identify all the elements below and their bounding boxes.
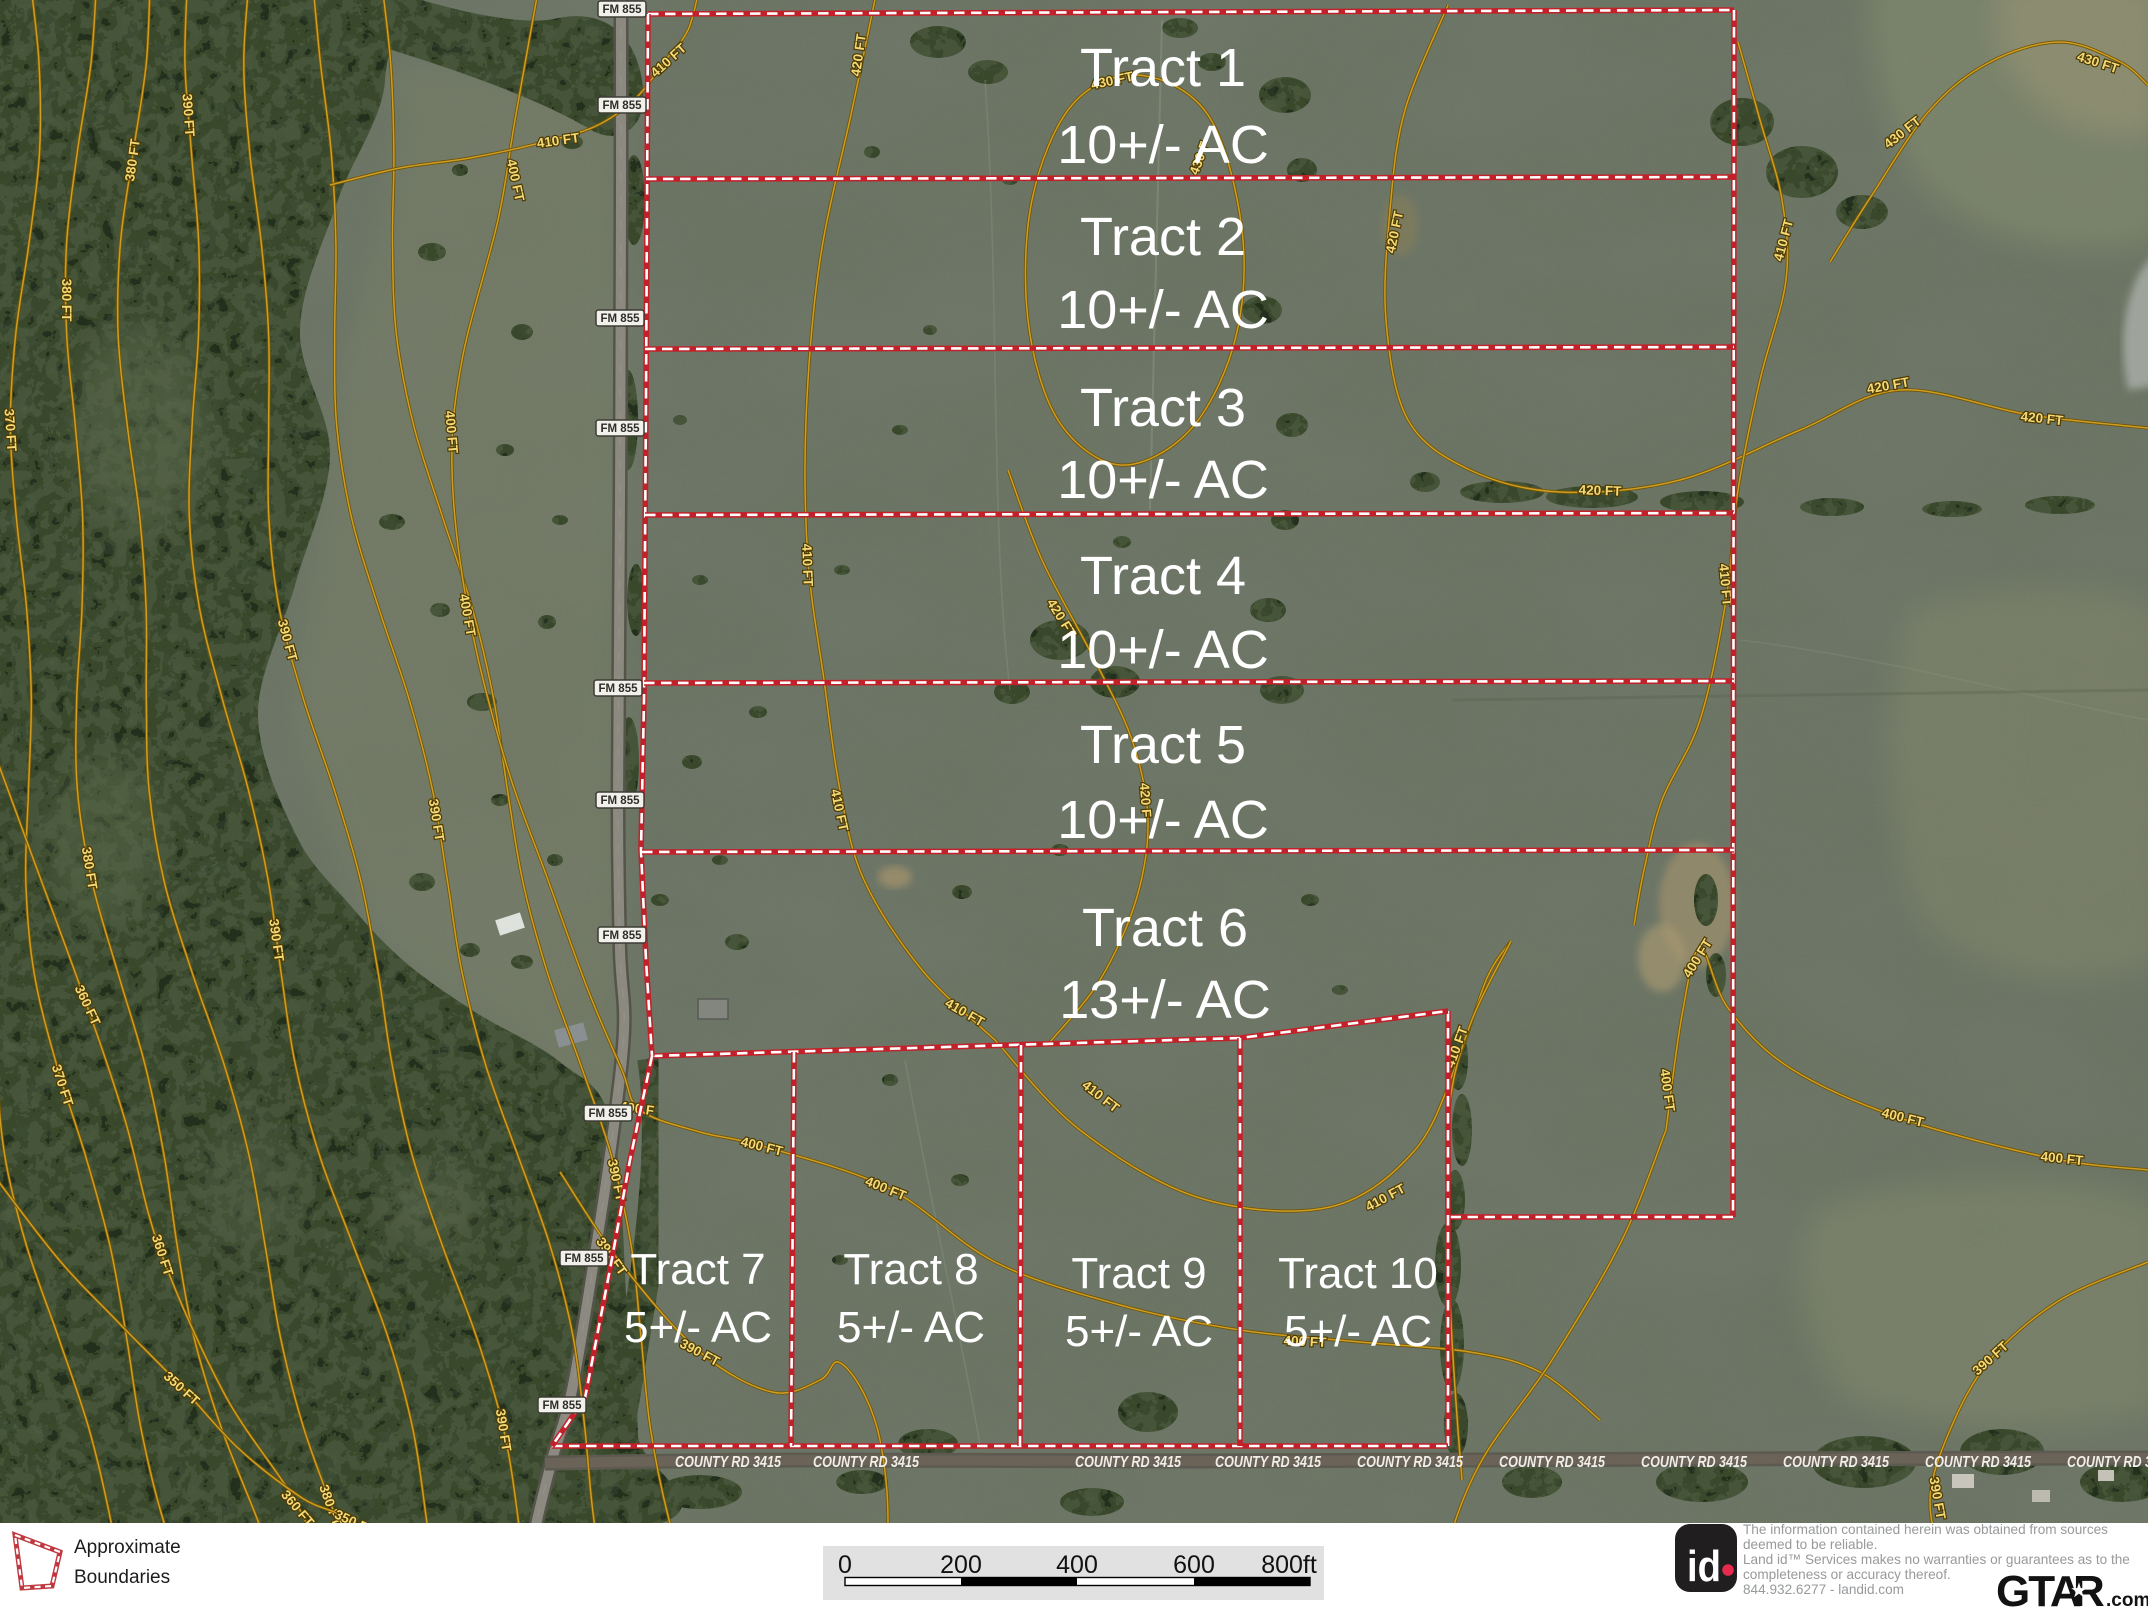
- svg-text:5+/- AC: 5+/- AC: [1065, 1307, 1213, 1356]
- svg-text:FM 855: FM 855: [601, 313, 641, 325]
- svg-text:Tract 3: Tract 3: [1080, 378, 1246, 438]
- svg-text:Boundaries: Boundaries: [74, 1567, 170, 1588]
- svg-text:.com: .com: [2106, 1590, 2148, 1609]
- svg-text:844.932.6277 - landid.com: 844.932.6277 - landid.com: [1743, 1582, 1904, 1597]
- svg-text:380 FT: 380 FT: [59, 279, 74, 323]
- svg-text:COUNTY RD 3415: COUNTY RD 3415: [675, 1454, 781, 1471]
- svg-text:FM 855: FM 855: [603, 100, 643, 112]
- svg-text:FM 855: FM 855: [565, 1253, 605, 1265]
- svg-text:COUNTY RD 3415: COUNTY RD 3415: [1075, 1454, 1181, 1471]
- svg-text:10+/- AC: 10+/- AC: [1057, 280, 1269, 340]
- svg-text:COUNTY RD 3415: COUNTY RD 3415: [1641, 1454, 1747, 1471]
- svg-text:200: 200: [940, 1551, 982, 1579]
- svg-text:600: 600: [1173, 1551, 1215, 1579]
- svg-text:13+/- AC: 13+/- AC: [1059, 970, 1271, 1030]
- svg-text:Tract 8: Tract 8: [843, 1245, 978, 1294]
- svg-text:Tract 9: Tract 9: [1071, 1249, 1206, 1298]
- svg-text:FM 855: FM 855: [603, 930, 643, 942]
- svg-text:5+/- AC: 5+/- AC: [837, 1303, 985, 1352]
- svg-text:400: 400: [1056, 1551, 1098, 1579]
- svg-text:FM 855: FM 855: [543, 1400, 583, 1412]
- svg-text:10+/- AC: 10+/- AC: [1057, 620, 1269, 680]
- svg-text:Tract 10: Tract 10: [1278, 1249, 1438, 1298]
- svg-text:FM 855: FM 855: [601, 423, 641, 435]
- svg-text:10+/- AC: 10+/- AC: [1057, 450, 1269, 510]
- svg-text:370 FT: 370 FT: [2, 408, 20, 452]
- svg-text:FM 855: FM 855: [599, 683, 639, 695]
- svg-text:5+/- AC: 5+/- AC: [1284, 1307, 1432, 1356]
- svg-text:Tract 1: Tract 1: [1080, 38, 1246, 98]
- svg-text:Tract 2: Tract 2: [1080, 207, 1246, 267]
- svg-text:COUNTY RD 3415: COUNTY RD 3415: [1357, 1454, 1463, 1471]
- svg-text:deemed to be reliable.: deemed to be reliable.: [1743, 1537, 1878, 1552]
- svg-text:id: id: [1687, 1542, 1721, 1591]
- svg-text:Tract 4: Tract 4: [1080, 546, 1246, 606]
- svg-text:GTA: GTA: [1996, 1567, 2081, 1609]
- svg-text:COUNTY RD 3415: COUNTY RD 3415: [1925, 1454, 2031, 1471]
- svg-text:COUNTY RD 3415: COUNTY RD 3415: [2067, 1454, 2148, 1471]
- svg-text:Land id™ Services makes no war: Land id™ Services makes no warranties or…: [1743, 1552, 2130, 1567]
- svg-text:Tract 5: Tract 5: [1080, 715, 1246, 775]
- svg-text:completeness or accuracy there: completeness or accuracy thereof.: [1743, 1567, 1951, 1582]
- svg-text:COUNTY RD 3415: COUNTY RD 3415: [813, 1454, 919, 1471]
- svg-text:FM 855: FM 855: [603, 4, 643, 16]
- svg-text:5+/- AC: 5+/- AC: [624, 1303, 772, 1352]
- svg-text:COUNTY RD 3415: COUNTY RD 3415: [1215, 1454, 1321, 1471]
- svg-text:★: ★: [2070, 1580, 2088, 1602]
- svg-text:Approximate: Approximate: [74, 1537, 181, 1558]
- svg-text:COUNTY RD 3415: COUNTY RD 3415: [1783, 1454, 1889, 1471]
- svg-text:10+/- AC: 10+/- AC: [1057, 115, 1269, 175]
- svg-text:420 FT: 420 FT: [1578, 482, 1622, 499]
- svg-text:390 FT: 390 FT: [180, 93, 198, 137]
- svg-text:COUNTY RD 3415: COUNTY RD 3415: [1499, 1454, 1605, 1471]
- svg-text:Tract 7: Tract 7: [630, 1245, 765, 1294]
- svg-text:0: 0: [838, 1551, 852, 1579]
- svg-text:The information contained here: The information contained herein was obt…: [1743, 1522, 2108, 1537]
- svg-text:800ft: 800ft: [1261, 1551, 1317, 1579]
- svg-text:FM 855: FM 855: [601, 795, 641, 807]
- svg-text:FM 855: FM 855: [589, 1108, 629, 1120]
- svg-text:410 FT: 410 FT: [799, 543, 816, 587]
- svg-text:Tract 6: Tract 6: [1082, 898, 1248, 958]
- svg-text:10+/- AC: 10+/- AC: [1057, 790, 1269, 850]
